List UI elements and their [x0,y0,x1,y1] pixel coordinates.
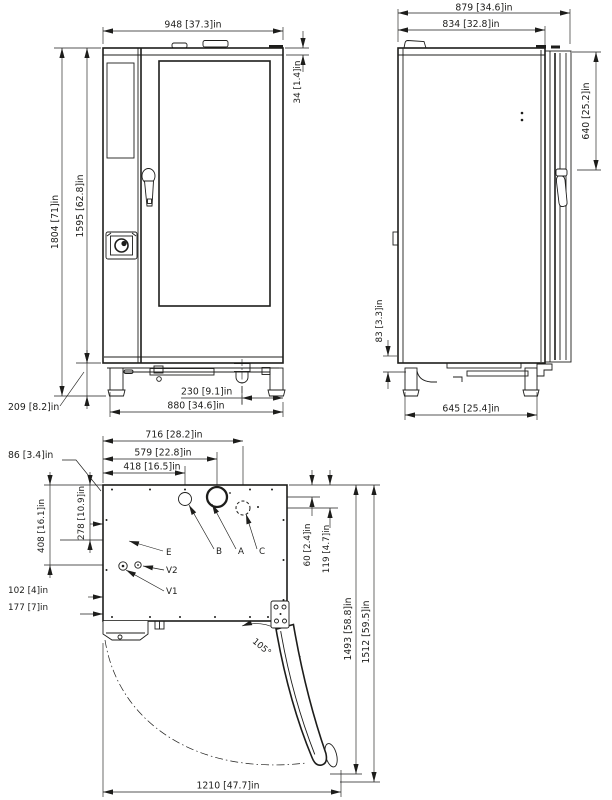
dim-side-handle-top: 640 [25.2]in [581,82,592,139]
foot [403,390,419,396]
dim-front-leg-span: 880 [34.6]in [167,401,224,412]
dim-side-base-frame: 83 [3.3]in [375,300,385,343]
front-view: 948 [37.3]in 34 [1.4]in 1804 [71]in 1595… [8,20,309,418]
label-v2: V2 [166,566,178,576]
technical-drawing: 948 [37.3]in 34 [1.4]in 1804 [71]in 1595… [0,0,612,800]
dim-plan-row-c-depth: 119 [4.7]in [322,525,332,573]
dim-front-drain-offset: 230 [9.1]in [181,387,232,398]
dim-plan-door-swing-depth: 1493 [58.8]in [343,597,354,660]
label-e: E [166,548,172,558]
dim-side-leg-span: 645 [25.4]in [442,404,499,415]
side-dimensions: 879 [34.6]in 834 [32.8]in 640 [25.2]in 8… [375,3,601,421]
side-view: 879 [34.6]in 834 [32.8]in 640 [25.2]in 8… [375,3,601,421]
front-door-handle [142,169,155,207]
door-swing-arc [105,640,306,765]
dim-plan-conn-b: 418 [16.5]in [123,462,180,473]
door-hinge [271,601,289,628]
control-panel-protrusion [103,621,148,640]
dim-plan-conn-c: 716 [28.2]in [145,430,202,441]
dim-plan-door-angle: 105° [250,637,273,658]
top-trim [269,45,283,49]
label-v1: V1 [166,587,178,597]
dim-plan-row-ab-depth: 60 [2.4]in [303,524,313,567]
dim-front-leg-height: 209 [8.2]in [8,402,59,413]
dim-plan-v1-offset: 102 [4]in [8,586,48,596]
dim-front-overall-width: 948 [37.3]in [164,20,221,31]
dim-plan-door-swing-total: 1512 [59.5]in [361,600,372,663]
front-oven-body [103,48,283,363]
dim-plan-corner-offset: 86 [3.4]in [8,450,53,461]
side-base [403,363,552,396]
dim-plan-row-e: 278 [10.9]in [77,486,87,540]
dim-plan-row-v: 408 [16.1]in [37,499,47,553]
plan-door-open [273,622,339,772]
label-b: B [216,547,222,557]
label-a: A [238,547,244,557]
connection-c-circle [236,501,250,515]
dim-plan-door-open-width: 1210 [47.7]in [196,781,259,792]
dim-side-overall-depth: 879 [34.6]in [455,3,512,14]
leg [110,368,123,390]
side-top-vent [404,41,426,49]
plan-view: 716 [28.2]in 579 [22.8]in 418 [16.5]in 8… [8,430,380,798]
leg [405,368,417,390]
label-c: C [259,547,265,557]
dim-front-top-panel: 34 [1.4]in [293,61,303,104]
foot [268,390,285,396]
dim-plan-conn-a: 579 [22.8]in [134,448,191,459]
drawing-sheet: 948 [37.3]in 34 [1.4]in 1804 [71]in 1595… [0,0,612,800]
top-trim [536,45,546,49]
side-oven-body [398,48,545,363]
dim-front-body-height: 1595 [62.8]in [75,174,86,237]
door-window [159,61,270,306]
leg [270,368,283,390]
top-vent [203,41,228,48]
side-door-handle [556,169,567,207]
top-trim [551,46,560,49]
foot [523,390,539,396]
connection-a-circle [207,487,227,507]
connection-b-circle [179,493,192,506]
foot [108,390,125,396]
dim-front-overall-height: 1804 [71]in [50,195,61,249]
display-panel [107,63,134,158]
dim-side-body-depth: 834 [32.8]in [442,19,499,30]
control-knob [106,232,137,259]
dim-plan-v2-offset: 177 [7]in [8,603,48,613]
